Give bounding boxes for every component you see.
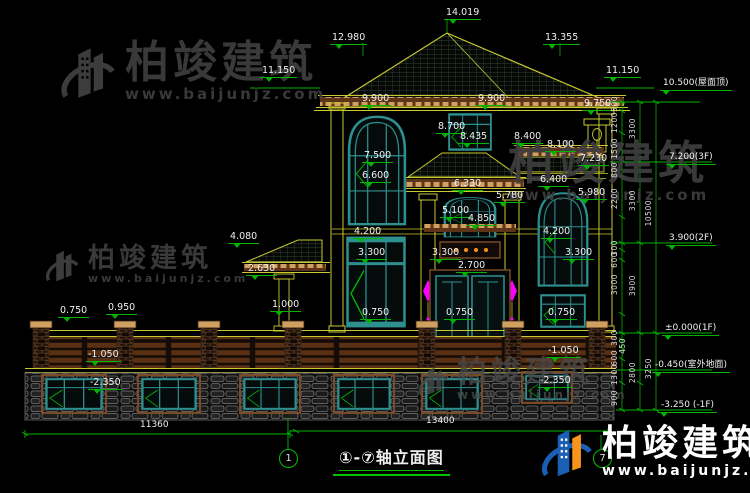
dim-label: 0.950 xyxy=(106,303,137,315)
chain-label: 450 xyxy=(619,338,627,354)
dim-label: 12.980 xyxy=(330,33,367,45)
dim-label: 4.850 xyxy=(466,214,497,226)
dim-label: 4.080 xyxy=(228,232,259,244)
dim-label: -1.050 xyxy=(546,346,581,358)
dim-label: -2.350 xyxy=(88,378,123,390)
dim-label: 7.500 xyxy=(362,151,393,163)
axis-bubble-1: 1 xyxy=(279,449,298,468)
entry-door xyxy=(424,224,516,350)
axis-bubble-7: 7 xyxy=(593,449,612,468)
chain-label: 3300 xyxy=(629,118,637,139)
chain-label: 1300 xyxy=(611,364,619,385)
chain-label: 2800 xyxy=(629,362,637,383)
dim-label: 9.900 xyxy=(476,94,507,106)
dim-label: -2.350 xyxy=(538,376,573,388)
axis-number: 1 xyxy=(285,453,291,464)
dim-label: 11.150 xyxy=(604,66,641,78)
level-label: 7.200(3F) xyxy=(666,153,716,165)
level-label: 3.900(2F) xyxy=(666,234,716,246)
chain-label: 3000 xyxy=(611,274,619,295)
dim-label: 2.630 xyxy=(246,264,277,276)
dim-label: -1.050 xyxy=(86,350,121,362)
dim-label: 1.000 xyxy=(270,300,301,312)
dim-label: 0.750 xyxy=(58,306,89,318)
chain-label: 3300 xyxy=(629,190,637,211)
dim-label: 6.600 xyxy=(360,171,391,183)
dim-label: 4.200 xyxy=(352,227,383,239)
plain-label: 13400 xyxy=(426,417,455,427)
level-label: ±0.000(1F) xyxy=(662,324,719,336)
dim-label: 3.300 xyxy=(430,248,461,260)
dim-label: 8.400 xyxy=(512,132,543,144)
chain-label: 2200 xyxy=(611,188,619,209)
chain-label: 3250 xyxy=(645,358,653,379)
chain-label: 1500 xyxy=(611,138,619,159)
dim-label: 0.750 xyxy=(360,308,391,320)
drawing-title: ①-⑦轴立面图 xyxy=(333,444,450,476)
dim-label: 13.355 xyxy=(543,33,580,45)
dim-label: 5.780 xyxy=(494,191,525,203)
dim-label: 3.300 xyxy=(356,248,387,260)
axis-number: 7 xyxy=(599,453,605,464)
level-label: -0.450(室外地面) xyxy=(652,361,730,373)
dim-label: 0.750 xyxy=(546,308,577,320)
dim-label: 0.750 xyxy=(444,308,475,320)
level-label: -3.250 (-1F) xyxy=(658,401,717,413)
dim-label: 3.300 xyxy=(563,248,594,260)
dim-label: 6.400 xyxy=(538,175,569,187)
chain-label: 1200 xyxy=(611,112,619,133)
plain-label: 11360 xyxy=(140,421,169,431)
dim-label: 5.980 xyxy=(576,188,607,200)
dim-label: 7.230 xyxy=(578,154,609,166)
chain-label: 3900 xyxy=(629,275,637,296)
level-label: 10.500(屋面顶) xyxy=(660,79,732,91)
dim-label: 14.019 xyxy=(444,8,481,20)
dim-label: 11.150 xyxy=(260,66,297,78)
dim-label: 8.100 xyxy=(545,140,576,152)
left-porch xyxy=(242,240,330,331)
chain-label: 600 xyxy=(611,252,619,268)
dim-label: 9.750 xyxy=(582,99,613,111)
terrace-fence xyxy=(25,321,616,373)
dim-label: 9.900 xyxy=(360,94,391,106)
cad-elevation-drawing: 柏竣建筑 www.baijunjz.com 柏竣建筑 www.baijunjz.… xyxy=(0,0,750,493)
chain-label: 10500 xyxy=(645,200,653,226)
dim-label: 6.330 xyxy=(452,179,483,191)
chain-label: 800 xyxy=(611,162,619,178)
dim-label: 2.700 xyxy=(456,261,487,273)
dim-label: 4.200 xyxy=(541,227,572,239)
chain-label: 500 xyxy=(611,96,619,112)
chain-label: 900 xyxy=(611,390,619,406)
dim-label: 8.435 xyxy=(458,132,489,144)
